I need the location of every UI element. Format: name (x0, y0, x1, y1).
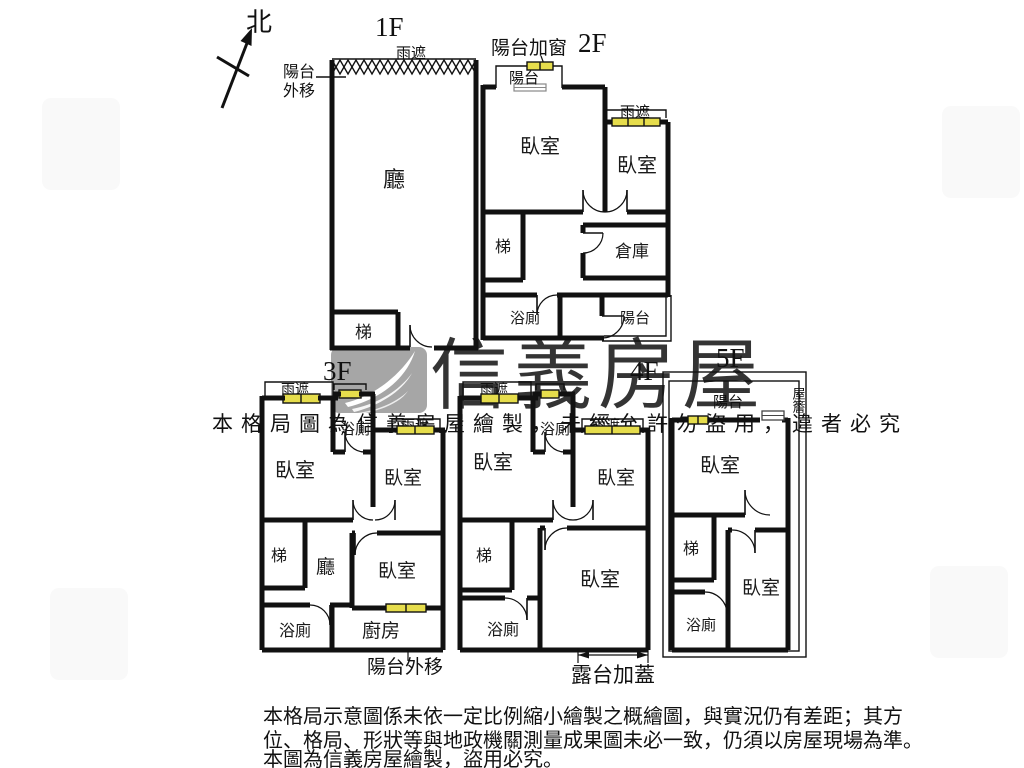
f3-note-label: 陽台外移 (367, 656, 443, 678)
f3-bedroom-mid-label: 臥室 (378, 560, 416, 582)
f5-stairs-label: 梯 (683, 540, 699, 558)
f4-bedroom-left-label: 臥室 (473, 451, 513, 474)
f3-door-leaves (330, 432, 395, 625)
f3-bedroom-right-label: 臥室 (384, 467, 422, 489)
f4-title: 4F (630, 356, 659, 386)
f4-bath-top-label: 浴廁 (540, 420, 570, 438)
f2-title: 2F (578, 28, 607, 58)
f1-stairs-label: 梯 (355, 323, 372, 342)
f4-bedroom-big-label: 臥室 (580, 568, 620, 591)
f3-bedroom-left-label: 臥室 (275, 459, 315, 482)
disclaimer-line-3: 本圖為信義房屋繪製，盜用必究。 (263, 748, 563, 768)
f5-bedroom-top-label: 臥室 (700, 454, 740, 477)
f5-balcony-label: 陽台 (713, 394, 743, 411)
f2-balcony-bottom-label: 陽台 (620, 310, 650, 327)
f5-bedroom-bottom-label: 臥室 (742, 577, 780, 599)
f1-living-label: 廳 (383, 167, 405, 192)
f5-eave-label: 屋簷 (791, 387, 806, 413)
disclaimer: 本格局示意圖係未依一定比例縮小繪製之概繪圖，與實況仍有差距；其方 位、格局、形狀… (263, 705, 923, 768)
f5-bath-label: 浴廁 (686, 616, 716, 634)
f3-window-bath (339, 390, 361, 398)
f3-bath-top-label: 浴廁 (340, 420, 370, 438)
f1-canopy-hatch-b (332, 60, 476, 74)
f1-title: 1F (375, 12, 404, 42)
f2-storage-label: 倉庫 (615, 242, 649, 261)
f3-kitchen-label: 廚房 (362, 619, 400, 642)
floorplan-canvas: 信義房屋 本格局圖為信義房屋繪製，未經允許勿盜用，違者必究 北 1F 雨遮 陽台… (0, 0, 1024, 768)
f1-walls (330, 60, 478, 350)
floorplan-page: 信義房屋 本格局圖為信義房屋繪製，未經允許勿盜用，違者必究 北 1F 雨遮 陽台… (0, 0, 1024, 768)
f5-title: 5F (716, 343, 745, 373)
f2-bedroom-right-label: 臥室 (617, 154, 657, 177)
floor-2F-plan: 2F 陽台加窗 陽台 雨遮 臥室 臥室 梯 倉庫 浴廁 陽台 (483, 28, 671, 341)
f1-balcony-out-label-2: 外移 (283, 82, 315, 100)
f4-bath-bottom-label: 浴廁 (487, 620, 519, 639)
f5-walls (672, 418, 788, 650)
f3-stairs-label: 梯 (271, 547, 287, 565)
f1-door-arc (410, 325, 432, 347)
disclaimer-line-1: 本格局示意圖係未依一定比例縮小繪製之概繪圖，與實況仍有差距；其方 (263, 705, 903, 728)
f2-balcony-window-note: 陽台加窗 (491, 37, 567, 59)
f4-bedroom-right-label: 臥室 (597, 467, 635, 489)
f2-stairs-label: 梯 (495, 238, 511, 256)
floor-1F-plan: 1F 雨遮 陽台 外移 廳 梯 (283, 12, 478, 350)
f3-bath-bottom-label: 浴廁 (279, 621, 311, 640)
f2-bath-label: 浴廁 (510, 309, 540, 327)
f4-window-bath (541, 390, 559, 398)
north-arrow-cross (217, 57, 249, 76)
f4-note-label: 露台加蓋 (571, 663, 655, 687)
f1-balcony-out-label-1: 陽台 (283, 63, 315, 81)
f3-living-label: 廳 (316, 556, 335, 578)
north-arrow: 北 (217, 8, 272, 108)
f2-bedroom-left-label: 臥室 (520, 135, 560, 158)
f1-canopy-hatch-a (332, 60, 476, 74)
f2-balcony-top-label: 陽台 (509, 70, 539, 87)
f2-bedroom-right-window (612, 118, 660, 126)
f4-stairs-label: 梯 (476, 547, 492, 565)
